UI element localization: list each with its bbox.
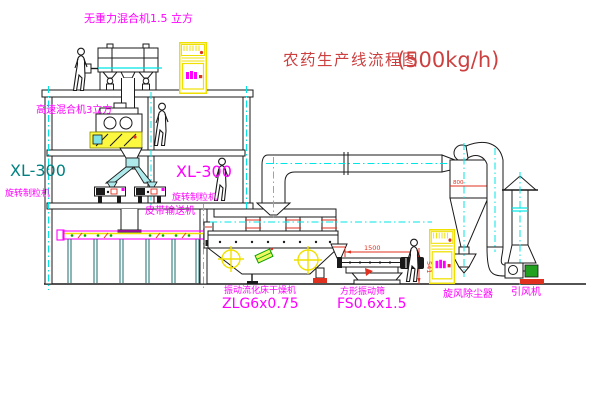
- process-flow-drawing: 无重力混合机1.5 立方 农药生产线流程图 (500kg/h) 高速混合机3立方…: [0, 0, 600, 403]
- worker-roof: [74, 48, 88, 90]
- label-high-speed-mixer: 高速混合机3立方: [36, 103, 112, 116]
- label-dryer-name: 振动流化床干燥机: [224, 284, 296, 296]
- label-gravity-mixer: 无重力混合机1.5 立方: [84, 11, 193, 25]
- induced-draft-fan: [505, 263, 544, 284]
- label-fan: 引风机: [511, 285, 541, 298]
- dim-cyclone: 800: [453, 180, 464, 186]
- dim-sieve-height: 541: [425, 261, 433, 273]
- label-granulator-left: 旋转制粒机: [5, 187, 50, 199]
- control-cabinet-1: [180, 43, 207, 94]
- worker-floor2: [155, 103, 169, 145]
- diagram-canvas: 无重力混合机1.5 立方 农药生产线流程图 (500kg/h) 高速混合机3立方…: [0, 0, 600, 403]
- label-belt-conveyor: 皮带输送机: [145, 204, 195, 217]
- granulator-left: [95, 182, 126, 203]
- label-xl300-left: XL-300: [10, 161, 66, 180]
- label-granulator-mid: 旋转制粒机: [172, 191, 217, 203]
- exhaust-duct: [257, 152, 455, 218]
- label-cyclone: 旋风除尘器: [443, 287, 493, 300]
- belt-conveyor: [57, 230, 212, 283]
- drop-duct: [118, 209, 141, 232]
- page-title-capacity: (500kg/h): [397, 48, 499, 72]
- dim-sieve-length: 1500: [364, 244, 381, 252]
- control-cabinet-2: [430, 230, 455, 284]
- y-distribution-pipe: [106, 158, 152, 183]
- cyclone-separator: [450, 143, 488, 277]
- label-xl300-mid: XL-300: [176, 162, 232, 181]
- label-sieve-model: FS0.6x1.5: [337, 296, 407, 312]
- label-dryer-model: ZLG6x0.75: [222, 296, 299, 312]
